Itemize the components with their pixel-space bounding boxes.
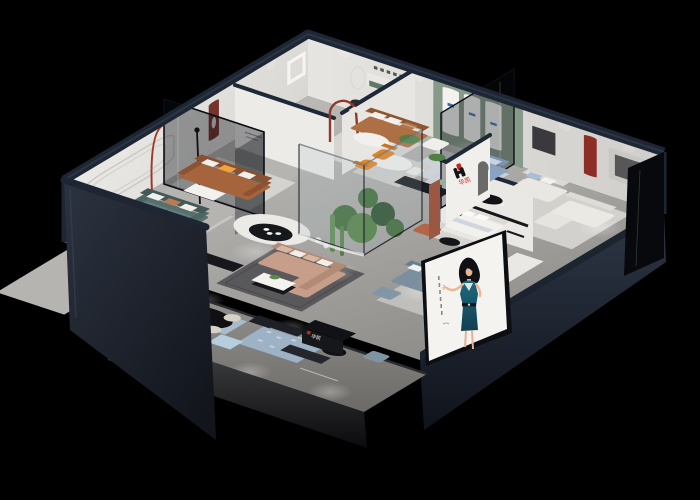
red-arch-niche xyxy=(584,134,597,178)
glossy-corner-panel xyxy=(624,152,664,276)
render-canvas: 华凯 xyxy=(0,0,700,500)
terracotta-panel xyxy=(429,179,440,240)
showroom-render: 华凯 xyxy=(0,0,700,500)
